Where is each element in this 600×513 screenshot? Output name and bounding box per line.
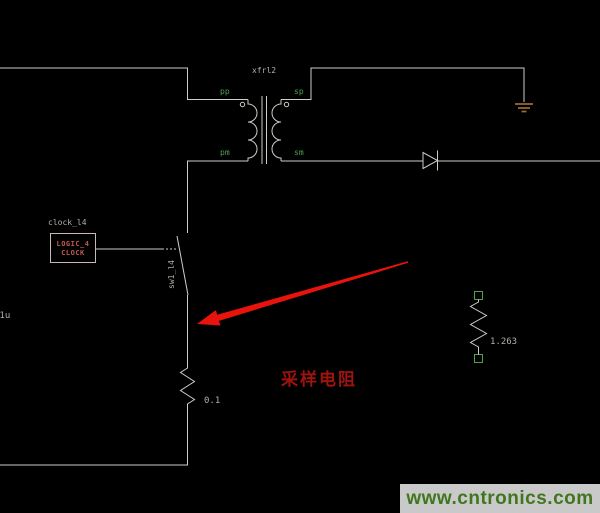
sense-resistor-symbol [0,366,195,465]
load-resistor-symbol [471,292,487,363]
partial-component-label: 01u [0,311,10,321]
polarity-dot-primary [240,102,244,106]
transformer-name-label: xfrl2 [252,66,276,75]
clock-source-box: LOGIC_4 CLOCK [50,233,96,263]
clock-box-line1: LOGIC_4 [56,240,89,248]
switch-symbol [177,236,188,366]
annotation-text: 采样电阻 [281,365,357,390]
pin-label-sp: sp [294,87,304,96]
transformer-symbol [240,96,288,164]
clock-box-line2: CLOCK [61,249,85,257]
pin-label-pm: pm [220,148,230,157]
watermark-text: www.cntronics.com [406,488,593,510]
pin-label-pp: pp [220,87,230,96]
switch-name-label: sw1_l4 [167,260,176,289]
schematic-canvas: xfrl2 pp sp pm sm clock_l4 LOGIC_4 CLOCK… [0,0,600,513]
clock-instance-label: clock_l4 [48,218,87,227]
terminal-square-bottom [475,355,483,363]
ground-symbol [515,104,533,112]
sense-resistor-value-label: 0.1 [204,396,220,406]
polarity-dot-secondary [284,102,288,106]
transformer-core [262,96,267,164]
pin-label-sm: sm [294,148,304,157]
terminal-square-top [475,292,483,300]
load-resistor-value-label: 1.263 [490,337,517,347]
diode-symbol [423,151,438,171]
primary-wires [0,68,248,233]
red-arrow [197,261,408,325]
watermark-band: www.cntronics.com [400,484,600,513]
secondary-top-wire [281,68,524,102]
